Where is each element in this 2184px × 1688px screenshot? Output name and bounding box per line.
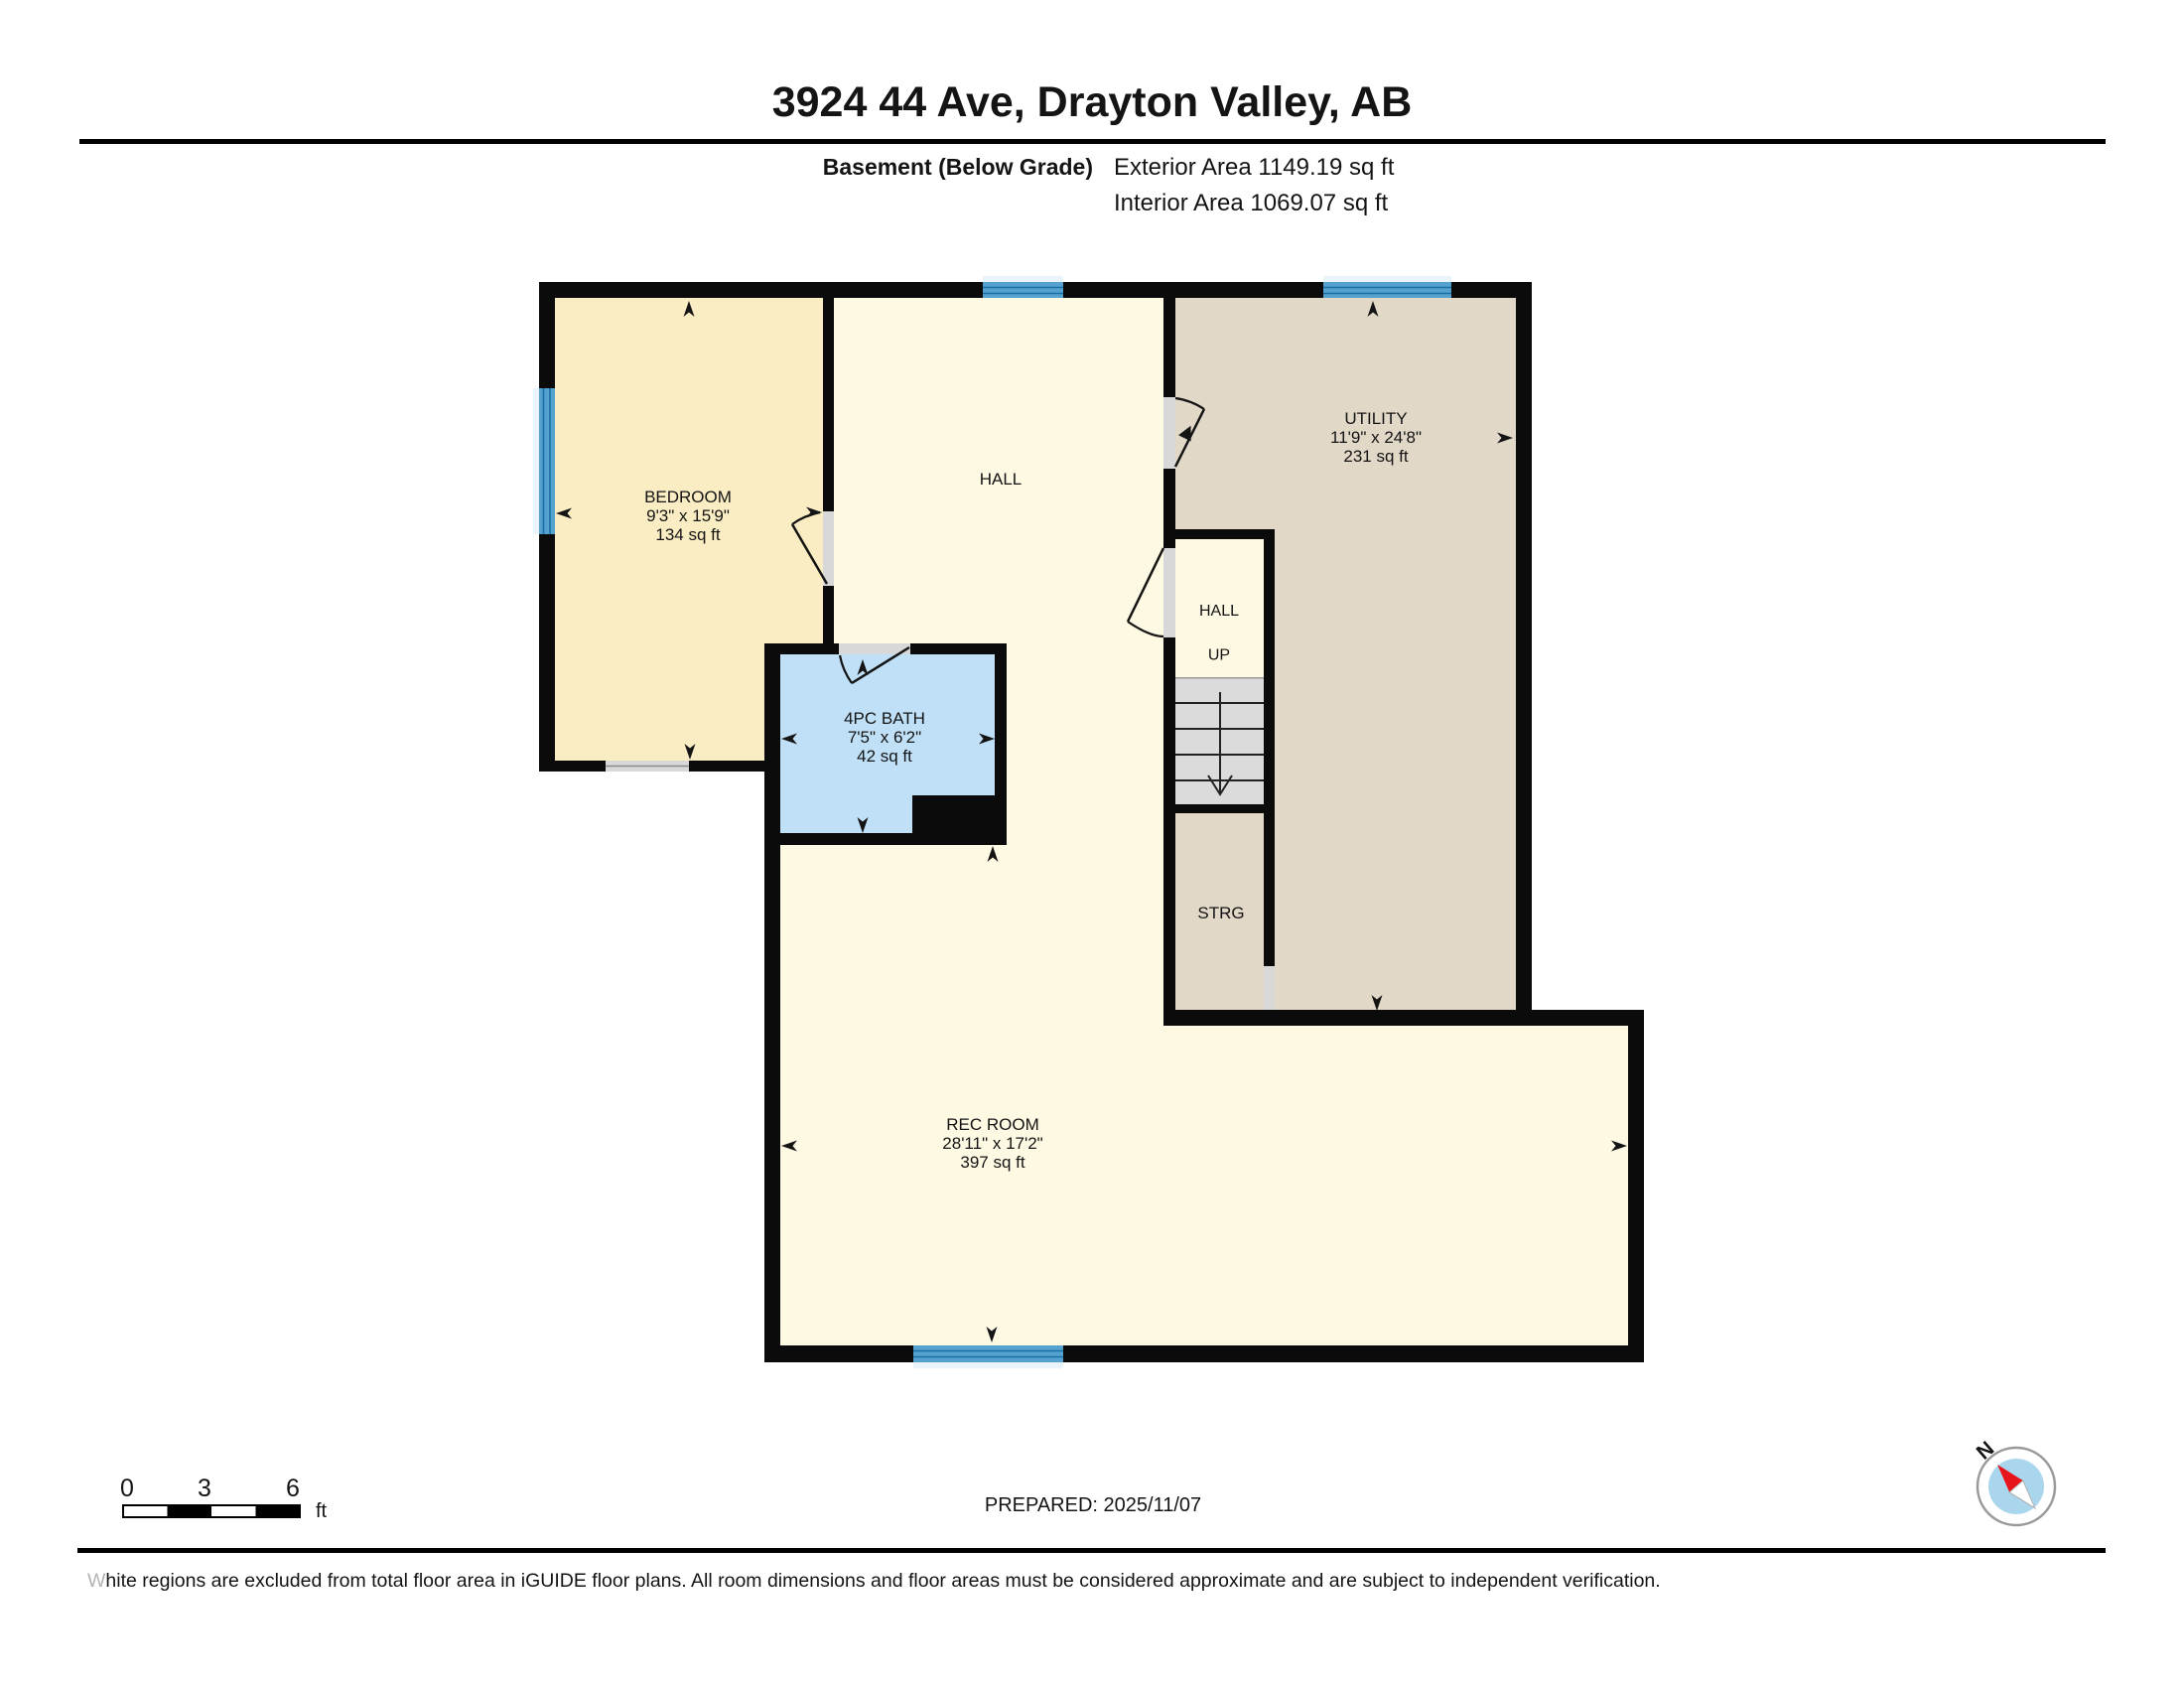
svg-text:UP: UP: [1208, 647, 1230, 664]
svg-text:HALL: HALL: [1199, 603, 1239, 620]
svg-text:Basement (Below Grade): Basement (Below Grade): [823, 154, 1093, 180]
svg-text:Exterior Area 1149.19 sq ft: Exterior Area 1149.19 sq ft: [1114, 154, 1395, 181]
svg-text:397 sq ft: 397 sq ft: [960, 1153, 1024, 1172]
svg-text:BEDROOM: BEDROOM: [644, 488, 732, 506]
svg-text:0: 0: [120, 1475, 134, 1502]
svg-text:3: 3: [198, 1475, 211, 1502]
svg-text:9'3" x 15'9": 9'3" x 15'9": [646, 506, 730, 525]
svg-text:White regions are excluded fro: White regions are excluded from total fl…: [87, 1570, 1661, 1592]
svg-text:ft: ft: [316, 1500, 328, 1522]
svg-text:28'11" x 17'2": 28'11" x 17'2": [942, 1134, 1042, 1153]
svg-text:HALL: HALL: [980, 470, 1023, 489]
svg-text:Interior Area 1069.07 sq ft: Interior Area 1069.07 sq ft: [1114, 190, 1389, 216]
svg-text:PREPARED: 2025/11/07: PREPARED: 2025/11/07: [985, 1494, 1201, 1516]
svg-text:UTILITY: UTILITY: [1344, 409, 1407, 428]
svg-text:STRG: STRG: [1197, 904, 1244, 922]
svg-text:7'5" x 6'2": 7'5" x 6'2": [848, 728, 921, 747]
svg-text:134 sq ft: 134 sq ft: [655, 525, 720, 544]
svg-text:REC ROOM: REC ROOM: [946, 1115, 1039, 1134]
svg-text:4PC BATH: 4PC BATH: [844, 709, 925, 728]
svg-text:3924 44 Ave, Drayton Valley, A: 3924 44 Ave, Drayton Valley, AB: [772, 78, 1413, 126]
svg-text:11'9" x 24'8": 11'9" x 24'8": [1330, 428, 1422, 447]
svg-text:231 sq ft: 231 sq ft: [1343, 447, 1408, 466]
svg-text:42 sq ft: 42 sq ft: [857, 747, 912, 766]
svg-text:6: 6: [286, 1475, 300, 1502]
